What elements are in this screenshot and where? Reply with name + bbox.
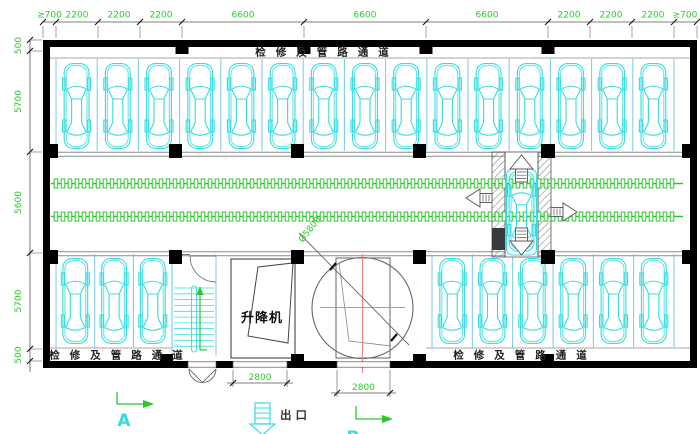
conveyor-roller <box>306 179 310 188</box>
conveyor-roller <box>110 179 114 188</box>
conveyor-roller <box>439 212 443 221</box>
conveyor-roller <box>432 179 436 188</box>
conveyor-roller <box>460 179 464 188</box>
conveyor-roller <box>635 179 639 188</box>
conveyor-roller <box>96 179 100 188</box>
conveyor-roller <box>621 212 625 221</box>
car-icon <box>100 259 128 344</box>
conveyor-roller <box>82 179 86 188</box>
conveyor-roller <box>565 179 569 188</box>
conveyor-roller <box>306 212 310 221</box>
conveyor-roller <box>152 212 156 221</box>
conveyor-roller <box>68 212 72 221</box>
exit-label: 出口 <box>280 408 311 422</box>
conveyor-roller <box>222 212 226 221</box>
conveyor-roller <box>404 212 408 221</box>
conveyor-roller <box>544 179 548 188</box>
dim-top-10: ≥700 <box>673 11 698 21</box>
columns <box>50 40 690 368</box>
car-icon <box>310 64 338 149</box>
parking-stalls <box>56 59 674 348</box>
conveyor-roller <box>635 212 639 221</box>
corridor-label-bottom-right: 检修及管路通道 <box>453 349 597 362</box>
stairwell <box>172 254 216 356</box>
conveyor-roller <box>145 212 149 221</box>
conveyor-roller <box>145 179 149 188</box>
conveyor-roller <box>215 179 219 188</box>
conveyor-roller <box>215 212 219 221</box>
conveyor-roller <box>355 179 359 188</box>
conveyor-roller <box>376 179 380 188</box>
conveyor-roller <box>194 179 198 188</box>
conveyor-roller <box>278 179 282 188</box>
conveyor-roller <box>264 212 268 221</box>
conveyor-roller <box>201 179 205 188</box>
conveyor-roller <box>341 212 345 221</box>
conveyor-roller <box>334 179 338 188</box>
dim-opening-right: 2800 <box>352 383 375 393</box>
conveyor-roller <box>467 212 471 221</box>
conveyor-roller <box>649 179 653 188</box>
conveyor-roller <box>474 179 478 188</box>
conveyor-roller <box>341 179 345 188</box>
conveyor-roller <box>551 179 555 188</box>
conveyor-roller <box>103 179 107 188</box>
conveyor-roller <box>579 179 583 188</box>
conveyor-roller <box>670 179 674 188</box>
conveyor-roller <box>348 212 352 221</box>
conveyor-roller <box>369 179 373 188</box>
conveyor-roller <box>663 212 667 221</box>
conveyor-roller <box>586 179 590 188</box>
conveyor-roller <box>54 179 58 188</box>
wall-bottom-2 <box>216 361 233 368</box>
conveyor-roller <box>124 212 128 221</box>
conveyor-roller <box>271 212 275 221</box>
conveyor-roller <box>495 179 499 188</box>
conveyor-roller <box>299 179 303 188</box>
conveyor-roller <box>446 212 450 221</box>
conveyor-roller <box>544 212 548 221</box>
conveyor-roller <box>194 212 198 221</box>
conveyor-roller <box>488 179 492 188</box>
conveyor-roller <box>313 179 317 188</box>
dim-top-9: 2200 <box>642 11 665 21</box>
dim-top-1: 2200 <box>66 11 89 21</box>
conveyor-roller <box>159 212 163 221</box>
dim-top-8: 2200 <box>600 11 623 21</box>
shuttle-hatch-right <box>538 152 551 257</box>
conveyor-roller <box>222 179 226 188</box>
shuttle-block <box>492 228 505 250</box>
conveyor-roller <box>89 212 93 221</box>
conveyor-roller <box>124 179 128 188</box>
stair-door-opening <box>188 362 216 367</box>
conveyor-roller <box>96 212 100 221</box>
conveyor-roller <box>250 179 254 188</box>
car-icon <box>557 64 585 149</box>
dim-top-4: 6600 <box>232 11 255 21</box>
dim-top-7: 2200 <box>558 11 581 21</box>
turntable: Ø5800 <box>296 214 413 373</box>
conveyor-roller <box>593 179 597 188</box>
conveyor-roller <box>425 179 429 188</box>
shuttle-car-group <box>466 155 577 255</box>
conveyor-roller <box>607 179 611 188</box>
car-icon <box>598 64 626 149</box>
conveyor-roller <box>642 179 646 188</box>
conveyor-roller <box>285 212 289 221</box>
car-icon <box>227 64 255 149</box>
conveyor-roller <box>61 212 65 221</box>
conveyor-roller <box>383 212 387 221</box>
conveyor-roller <box>670 212 674 221</box>
conveyor-roller <box>166 212 170 221</box>
conveyor-roller <box>236 212 240 221</box>
marker-b-label: B <box>347 428 360 434</box>
conveyor-roller <box>243 212 247 221</box>
conveyor-roller <box>495 212 499 221</box>
conveyor-roller <box>579 212 583 221</box>
stair-arrow-head <box>197 286 204 295</box>
conveyor-roller <box>292 179 296 188</box>
stair-treads <box>174 288 214 346</box>
conveyor-roller <box>600 179 604 188</box>
car-icon <box>639 64 667 149</box>
conveyor-roller <box>418 212 422 221</box>
car-icon <box>392 64 420 149</box>
conveyor-roller <box>187 212 191 221</box>
door-swing-arc <box>190 256 216 282</box>
car-icon <box>269 64 297 149</box>
conveyor-roller <box>334 212 338 221</box>
conveyor-roller <box>453 179 457 188</box>
conveyor-roller <box>173 179 177 188</box>
car-icon <box>475 64 503 149</box>
stair-rail <box>192 286 197 352</box>
conveyor-roller <box>628 179 632 188</box>
car-icon <box>139 259 167 344</box>
conveyor-roller <box>586 212 590 221</box>
conveyor-roller <box>68 179 72 188</box>
conveyor-roller <box>103 212 107 221</box>
conveyor-roller <box>642 212 646 221</box>
conveyor-roller <box>502 179 506 188</box>
double-door <box>189 369 216 383</box>
lift-room: 升降机 <box>231 259 295 358</box>
conveyor-roller <box>278 212 282 221</box>
left-arrow-icon <box>466 189 480 207</box>
dim-top-3: 2200 <box>150 11 173 21</box>
car-icon <box>61 259 89 344</box>
conveyor-roller <box>418 179 422 188</box>
dim-top-5: 6600 <box>354 11 377 21</box>
conveyor-roller <box>54 212 58 221</box>
conveyor-roller <box>376 212 380 221</box>
conveyor-roller <box>453 212 457 221</box>
conveyor-roller <box>467 179 471 188</box>
conveyor-roller <box>390 212 394 221</box>
conveyor-roller <box>236 179 240 188</box>
conveyor-roller <box>110 212 114 221</box>
conveyor-roller <box>131 179 135 188</box>
conveyor-roller <box>208 212 212 221</box>
parking-floor-plan: 升降机 Ø5800 <box>0 0 700 434</box>
conveyor-roller <box>411 179 415 188</box>
conveyor-roller <box>432 212 436 221</box>
conveyor-roller <box>180 212 184 221</box>
car-icon <box>63 64 91 149</box>
car-icon <box>559 259 587 344</box>
conveyor-roller <box>320 179 324 188</box>
conveyor-roller <box>404 179 408 188</box>
outer-walls <box>43 40 697 368</box>
conveyor-roller <box>397 179 401 188</box>
opening-left <box>233 362 287 367</box>
car-icon <box>351 64 379 149</box>
conveyor-roller <box>117 212 121 221</box>
conveyor-roller <box>572 179 576 188</box>
conveyor-roller <box>390 179 394 188</box>
conveyor-roller <box>166 179 170 188</box>
conveyor-roller <box>446 179 450 188</box>
dim-top-0: ≥700 <box>37 11 62 21</box>
conveyor-roller <box>257 179 261 188</box>
dim-top-6: 6600 <box>476 11 499 21</box>
conveyor-roller <box>355 212 359 221</box>
conveyor-roller <box>474 212 478 221</box>
conveyor-roller <box>327 212 331 221</box>
corridor-label-top: 检修及管路通道 <box>255 46 399 59</box>
car-icon <box>104 64 132 149</box>
dim-left-3: 5700 <box>14 289 24 312</box>
conveyor-roller <box>299 212 303 221</box>
conveyor-roller <box>285 179 289 188</box>
section-marker-b: B <box>347 406 393 434</box>
conveyor-roller <box>180 179 184 188</box>
conveyor-roller <box>61 179 65 188</box>
conveyor-roller <box>201 212 205 221</box>
floor-plan-canvas: 升降机 Ø5800 <box>0 0 700 434</box>
conveyor-roller <box>250 212 254 221</box>
conveyor-roller <box>425 212 429 221</box>
conveyor-roller <box>481 212 485 221</box>
conveyor-roller <box>159 179 163 188</box>
dim-opening-left: 2800 <box>249 373 272 383</box>
section-marker-a: A <box>117 392 154 431</box>
lift-room-label: 升降机 <box>241 310 283 326</box>
conveyor-roller <box>460 212 464 221</box>
marker-a-label: A <box>117 411 131 431</box>
conveyor-roller <box>558 179 562 188</box>
wall-right <box>690 40 697 368</box>
wall-left <box>43 40 50 368</box>
dim-left-1: 5700 <box>14 90 24 113</box>
conveyor-roller <box>138 212 142 221</box>
conveyor-roller <box>600 212 604 221</box>
conveyor-roller <box>152 179 156 188</box>
conveyor-roller <box>131 212 135 221</box>
car-icon <box>438 259 466 344</box>
conveyor-roller <box>593 212 597 221</box>
conveyor-roller <box>607 212 611 221</box>
conveyor-roller <box>411 212 415 221</box>
conveyor-roller <box>537 212 541 221</box>
conveyor-roller <box>117 179 121 188</box>
exit-symbol: 出口 <box>250 403 311 434</box>
conveyor-roller <box>75 179 79 188</box>
conveyor-roller <box>292 212 296 221</box>
conveyor-roller <box>327 179 331 188</box>
dim-left-4: 500 <box>14 346 24 363</box>
conveyor-roller <box>439 179 443 188</box>
car-icon <box>516 64 544 149</box>
marker-a-arrow-icon <box>143 400 154 408</box>
car-icon <box>433 64 461 149</box>
conveyor-roller <box>656 212 660 221</box>
conveyor-roller <box>614 179 618 188</box>
conveyor-roller <box>362 179 366 188</box>
car-icon <box>145 64 173 149</box>
car-icon <box>479 259 507 344</box>
conveyor-roller <box>187 179 191 188</box>
conveyor-roller <box>628 212 632 221</box>
conveyor-roller <box>208 179 212 188</box>
conveyor-roller <box>257 212 261 221</box>
conveyor-roller <box>656 179 660 188</box>
conveyor-roller <box>621 179 625 188</box>
corridor-label-bottom-left: 检修及管路通道 <box>49 349 193 362</box>
conveyor-roller <box>362 212 366 221</box>
exit-arrow-head-icon <box>250 424 275 434</box>
conveyor-roller <box>614 212 618 221</box>
conveyor-roller <box>397 212 401 221</box>
conveyor-roller <box>243 179 247 188</box>
conveyor-roller <box>348 179 352 188</box>
conveyor-roller <box>649 212 653 221</box>
conveyor-roller <box>173 212 177 221</box>
conveyor-roller <box>229 212 233 221</box>
dim-left-0: 500 <box>14 37 24 54</box>
opening-right <box>337 362 390 367</box>
conveyor-roller <box>369 212 373 221</box>
dim-left-2: 5600 <box>14 191 24 214</box>
conveyor-roller <box>502 212 506 221</box>
conveyor-roller <box>537 179 541 188</box>
conveyor-roller <box>138 179 142 188</box>
car-icon <box>640 259 668 344</box>
conveyor-roller <box>663 179 667 188</box>
car-icon <box>519 259 547 344</box>
conveyor-tracks <box>51 179 683 221</box>
conveyor-roller <box>271 179 275 188</box>
conveyor-roller <box>264 179 268 188</box>
car-icon <box>600 259 628 344</box>
marker-b-arrow-icon <box>382 415 393 423</box>
conveyor-roller <box>82 212 86 221</box>
conveyor-roller <box>75 212 79 221</box>
conveyor-roller <box>488 212 492 221</box>
dim-top-2: 2200 <box>108 11 131 21</box>
conveyor-roller <box>89 179 93 188</box>
car-icon <box>186 64 214 149</box>
conveyor-roller <box>229 179 233 188</box>
conveyor-roller <box>383 179 387 188</box>
conveyor-roller <box>481 179 485 188</box>
